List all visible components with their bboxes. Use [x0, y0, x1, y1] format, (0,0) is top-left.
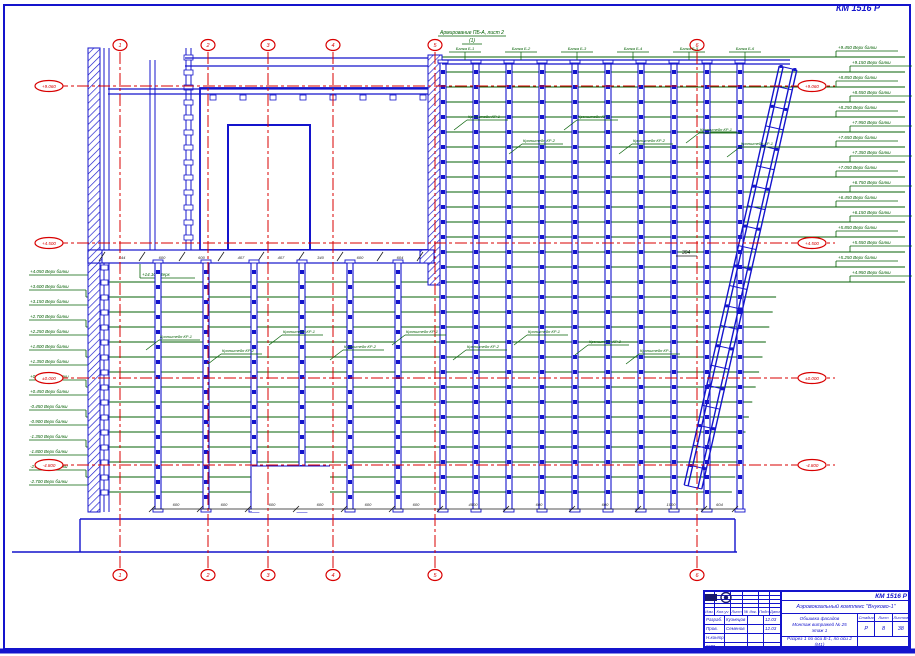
mullion-node [573, 325, 577, 329]
mullion-node [672, 205, 676, 209]
mullion-node [606, 415, 610, 419]
mullion-cap [153, 260, 163, 263]
mullion-cap [471, 509, 481, 512]
mullion-node [672, 265, 676, 269]
doc-code: КМ 1516 Р [782, 592, 910, 601]
mullion-node [606, 295, 610, 299]
mullion-node [441, 280, 445, 284]
right-elevation-label: +7.950 Верх балки [852, 120, 891, 125]
mullion-node [738, 175, 742, 179]
mullion-node [606, 130, 610, 134]
bracket-node [101, 325, 108, 330]
mullion-node [348, 270, 352, 274]
mullion-node [738, 355, 742, 359]
mullion-node [474, 295, 478, 299]
mullion-node [252, 300, 256, 304]
elevation-oval-label: +9.060 [805, 84, 819, 89]
mullion-node [639, 205, 643, 209]
bracket-label: Кронштейн КР-2 [344, 344, 377, 349]
callout-leader [626, 354, 639, 364]
mullion-node [606, 265, 610, 269]
axis-bubble-label: 2 [205, 573, 209, 579]
bracket-node [184, 235, 193, 240]
mullion-node [705, 175, 709, 179]
mullion-node [573, 250, 577, 254]
mullion-node [738, 160, 742, 164]
mullion-node [738, 205, 742, 209]
signature-cell: Пров. [705, 625, 725, 634]
bracket-node [101, 385, 108, 390]
mullion-node [573, 190, 577, 194]
mullion-node [474, 475, 478, 479]
mullion-node [474, 145, 478, 149]
mullion-node [474, 265, 478, 269]
bracket-label: Кронштейн КР-2 [222, 348, 255, 353]
mullion-node [738, 475, 742, 479]
mullion-node [396, 405, 400, 409]
bracket-node [101, 490, 108, 495]
left-elevation-label: +0.450 Верх балки [30, 389, 69, 394]
mullion-node [606, 355, 610, 359]
mullion-node [507, 115, 511, 119]
mullion-node [639, 250, 643, 254]
mullion-node [639, 115, 643, 119]
mullion-node [507, 340, 511, 344]
mullion-cap [201, 260, 211, 263]
mullion-node [348, 300, 352, 304]
mullion-node [540, 220, 544, 224]
mullion-column [155, 262, 161, 510]
mullion-node [738, 415, 742, 419]
mullion-node [441, 400, 445, 404]
mullion-node [672, 355, 676, 359]
mullion-node [705, 280, 709, 284]
signature-cell: 12.03 [764, 625, 781, 634]
mullion-node [573, 400, 577, 404]
mullion-node [156, 345, 160, 349]
right-elevation-label: +6.750 Верх балки [852, 180, 891, 185]
mullion-node [639, 190, 643, 194]
mullion-node [639, 340, 643, 344]
signature-cell [725, 643, 748, 652]
mullion-node [573, 415, 577, 419]
mullion-node [573, 100, 577, 104]
mullion-node [300, 450, 304, 454]
mullion-node [573, 70, 577, 74]
mullion-node [738, 490, 742, 494]
mullion-node [672, 160, 676, 164]
mullion-node [705, 370, 709, 374]
titleblock-col-label: Дата [770, 608, 781, 616]
mullion-node [348, 390, 352, 394]
mullion-node [507, 400, 511, 404]
bracket-label: Кронштейн КР-2 [633, 138, 666, 143]
mullion-node [441, 175, 445, 179]
mullion-node [606, 235, 610, 239]
mullion-node [672, 325, 676, 329]
mullion-node [606, 400, 610, 404]
bracket-node [184, 115, 193, 120]
signature-cell: Кузнецов [725, 616, 748, 625]
mullion-node [672, 175, 676, 179]
mullion-node [573, 220, 577, 224]
company-logo [858, 637, 910, 649]
mullion-node [396, 480, 400, 484]
signature-row: Разраб.Кузнецов12.03 [705, 616, 781, 625]
mullion-node [672, 250, 676, 254]
bracket-label: Кронштейн КР-1 [468, 114, 500, 119]
mullion-node [705, 475, 709, 479]
bracket-node [240, 95, 246, 100]
mullion-node [639, 325, 643, 329]
mullion-node [474, 190, 478, 194]
right-elevation-label: +7.650 Верх балки [838, 135, 877, 140]
mullion-node [606, 460, 610, 464]
mullion-cap [537, 509, 547, 512]
mullion-node [705, 235, 709, 239]
beam-tag-label: Балка Б-2 [512, 46, 531, 51]
mullion-node [639, 385, 643, 389]
mullion-node [639, 175, 643, 179]
mullion-node [156, 405, 160, 409]
bracket-label: Кронштейн КР-1 [160, 334, 192, 339]
mullion-node [507, 235, 511, 239]
mullion-node [672, 190, 676, 194]
left-elevation-label: -0.450 Верх балки [30, 404, 68, 409]
mullion-node [156, 270, 160, 274]
mullion-node [396, 330, 400, 334]
mullion-node [738, 70, 742, 74]
mullion-cap [603, 509, 613, 512]
dim-value: 600 [357, 255, 364, 260]
callout-leader [454, 120, 467, 130]
mullion-node [639, 445, 643, 449]
elevation-oval-label: ±0.000 [42, 376, 56, 381]
dim-value: 340 [317, 255, 324, 260]
mullion-node [156, 435, 160, 439]
bracket-node [270, 95, 276, 100]
mullion-node [441, 115, 445, 119]
mullion-node [252, 390, 256, 394]
mullion-node [672, 385, 676, 389]
elevation-oval-label: +4.500 [805, 241, 819, 246]
mullion-node [300, 315, 304, 319]
mullion-node [396, 420, 400, 424]
right-elevation-label: +7.050 Верх балки [838, 165, 877, 170]
drawing-title: Разрез 1 по оси Б-1, по оси 2(М1) [782, 637, 858, 649]
stage-header: СтадияЛистЛистов [858, 614, 910, 622]
mullion-node [204, 420, 208, 424]
mullion-column [440, 62, 446, 510]
mullion-node [639, 265, 643, 269]
drawing-title-line: (М1) [782, 643, 857, 649]
mullion-node [606, 220, 610, 224]
beam-end-hatch [420, 250, 434, 263]
mullion-node [705, 490, 709, 494]
callout-leader [619, 144, 632, 154]
mullion-node [573, 130, 577, 134]
elevation-oval-label: +9.060 [42, 84, 56, 89]
bracket-node [184, 175, 193, 180]
mullion-node [204, 450, 208, 454]
signature-cell [748, 634, 764, 643]
door-opening [228, 125, 310, 250]
mullion-node [507, 160, 511, 164]
mullion-node [507, 415, 511, 419]
dim-value: 600 [159, 255, 166, 260]
mullion-node [441, 145, 445, 149]
mullion-node [540, 160, 544, 164]
mullion-node [573, 175, 577, 179]
mullion-node [672, 100, 676, 104]
mullion-node [441, 190, 445, 194]
mullion-column [506, 62, 512, 510]
mullion-node [474, 250, 478, 254]
bracket-label: Кронштейн КР-1 [406, 329, 438, 334]
mullion-node [507, 385, 511, 389]
mullion-node [672, 145, 676, 149]
left-elevation-label: +2.700 Верх балки [30, 314, 69, 319]
stage-header-cell: Листов [893, 614, 910, 622]
dim-value: 407 [238, 255, 245, 260]
mullion-node [156, 450, 160, 454]
dim-value: 604 [716, 502, 723, 507]
mullion-node [705, 295, 709, 299]
mullion-node [156, 420, 160, 424]
bracket-label: Кронштейн КР-1 [640, 348, 672, 353]
mullion-node [204, 435, 208, 439]
mullion-column [671, 62, 677, 510]
mullion-node [573, 160, 577, 164]
dim-value: 600 [413, 502, 420, 507]
mullion-node [639, 70, 643, 74]
mullion-node [672, 340, 676, 344]
object-name-line: этаж 1 [782, 628, 857, 634]
mullion-node [705, 100, 709, 104]
mullion-node [507, 370, 511, 374]
bracket-node [101, 370, 108, 375]
mullion-node [639, 130, 643, 134]
beam-end-hatch [88, 250, 102, 263]
mullion-node [474, 310, 478, 314]
bracket-node [184, 160, 193, 165]
bracket-node [390, 95, 396, 100]
mullion-node [573, 295, 577, 299]
mullion-node [507, 265, 511, 269]
right-elevation-label: +8.550 Верх балки [852, 90, 891, 95]
mullion-node [573, 280, 577, 284]
mullion-node [441, 355, 445, 359]
ladder-node [793, 68, 796, 71]
mullion-node [738, 190, 742, 194]
mullion-node [705, 160, 709, 164]
mullion-node [474, 130, 478, 134]
mullion-node [606, 145, 610, 149]
mullion-node [540, 430, 544, 434]
mullion-node [204, 270, 208, 274]
mullion-node [507, 205, 511, 209]
bracket-node [101, 475, 108, 480]
mullion-node [252, 315, 256, 319]
mullion-column [638, 62, 644, 510]
mullion-node [348, 435, 352, 439]
mullion-node [738, 385, 742, 389]
ladder-node [703, 467, 706, 470]
stage-table: СтадияЛистЛистов Р838 [858, 614, 910, 636]
mullion-node [705, 430, 709, 434]
mullion-node [396, 360, 400, 364]
bracket-node [420, 95, 426, 100]
mullion-node [441, 385, 445, 389]
mullion-node [606, 205, 610, 209]
mullion-node [705, 355, 709, 359]
mullion-node [507, 310, 511, 314]
mullion-node [156, 285, 160, 289]
mullion-node [156, 480, 160, 484]
bracket-node [184, 145, 193, 150]
mullion-node [705, 265, 709, 269]
signature-cell [748, 616, 764, 625]
mullion-node [606, 430, 610, 434]
mullion-node [507, 130, 511, 134]
bracket-label: Кронштейн КР-1 [528, 329, 560, 334]
mullion-node [507, 445, 511, 449]
mullion-node [474, 490, 478, 494]
ladder-node [721, 387, 724, 390]
mullion-node [396, 435, 400, 439]
titleblock-col-label: Изм. [705, 608, 715, 616]
mullion-node [540, 145, 544, 149]
beam-tag-label: Балка Б-3 [568, 46, 587, 51]
mullion-node [441, 325, 445, 329]
mullion-node [573, 370, 577, 374]
mullion-node [300, 345, 304, 349]
mullion-node [540, 490, 544, 494]
ladder-node [716, 344, 719, 347]
mullion-node [540, 415, 544, 419]
mullion-node [348, 285, 352, 289]
mullion-node [606, 250, 610, 254]
mullion-node [348, 450, 352, 454]
mullion-node [639, 415, 643, 419]
elevation-oval-label: -4.800 [43, 463, 56, 468]
mullion-node [474, 205, 478, 209]
mullion-node [348, 480, 352, 484]
mullion-node [204, 390, 208, 394]
mullion-node [606, 310, 610, 314]
stage-value-cell: Р [858, 622, 875, 636]
mullion-column [395, 262, 401, 510]
mullion-node [348, 360, 352, 364]
mullion-node [396, 495, 400, 499]
callout-leader [269, 335, 282, 345]
signature-row: Пров.Семенов12.03 [705, 625, 781, 634]
mullion-node [639, 460, 643, 464]
elevation-oval-label: ±0.000 [805, 376, 819, 381]
mullion-node [441, 205, 445, 209]
mullion-node [204, 495, 208, 499]
signature-row: ГИП [705, 643, 781, 652]
stage-header-cell: Лист [875, 614, 892, 622]
mullion-node [639, 280, 643, 284]
right-elevation-label: +5.250 Верх балки [838, 255, 877, 260]
stage-value-cell: 38 [893, 622, 910, 636]
mullion-node [300, 285, 304, 289]
bracket-label: Кронштейн КР-1 [700, 127, 732, 132]
dim-value: 407 [278, 255, 285, 260]
mullion-node [540, 205, 544, 209]
mullion-node [540, 475, 544, 479]
dim-value: 600 [269, 502, 276, 507]
mullion-node [204, 465, 208, 469]
beam-tag-label: Балка Б-4 [624, 46, 643, 51]
ladder-node [707, 384, 710, 387]
titleblock-col-label: Лист [731, 608, 743, 616]
mullion-node [441, 415, 445, 419]
mullion-node [705, 415, 709, 419]
mullion-node [705, 325, 709, 329]
ladder-node [784, 108, 787, 111]
mullion-node [606, 385, 610, 389]
mullion-node [507, 475, 511, 479]
mullion-node [204, 480, 208, 484]
mullion-node [540, 265, 544, 269]
bracket-node [184, 130, 193, 135]
mullion-node [639, 400, 643, 404]
stage-value-cell: 8 [875, 622, 892, 636]
mullion-node [540, 460, 544, 464]
mullion-node [474, 355, 478, 359]
axis-bubble-label: 1 [118, 43, 121, 49]
mullion-node [639, 295, 643, 299]
mullion-node [156, 465, 160, 469]
axis-bubble-label: 4 [331, 43, 334, 49]
titleblock-bottom: Разрез 1 по оси Б-1, по оси 2(М1) [782, 637, 910, 649]
mullion-node [705, 250, 709, 254]
titleblock-right: КМ 1516 Р Аэровокзальный комплекс "Внуко… [782, 592, 910, 646]
mullion-node [348, 495, 352, 499]
doc-code-top: КМ 1516 Р [836, 3, 880, 13]
signature-cell: ГИП [705, 643, 725, 652]
mullion-node [474, 430, 478, 434]
right-elevation-label: +8.850 Верх балки [838, 75, 877, 80]
mullion-node [573, 490, 577, 494]
left-elevation-label: +3.600 Верх балки [30, 284, 69, 289]
mullion-node [540, 310, 544, 314]
axis-bubble-label: 2 [205, 43, 209, 49]
mullion-node [540, 100, 544, 104]
mullion-node [396, 270, 400, 274]
mullion-node [738, 445, 742, 449]
mullion-node [639, 475, 643, 479]
mullion-node [705, 205, 709, 209]
mullion-node [606, 160, 610, 164]
beam-tag-label: Балка Б-1 [456, 46, 474, 51]
right-elevation-label: +6.450 Верх балки [838, 195, 877, 200]
mullion-node [639, 235, 643, 239]
mullion-node [573, 205, 577, 209]
mullion-node [672, 490, 676, 494]
bracket-node [101, 280, 108, 285]
mullion-node [639, 100, 643, 104]
bracket-node [184, 205, 193, 210]
mullion-node [507, 490, 511, 494]
mullion-node [507, 145, 511, 149]
mullion-node [540, 115, 544, 119]
mullion-node [672, 130, 676, 134]
mullion-node [252, 405, 256, 409]
mullion-node [672, 220, 676, 224]
